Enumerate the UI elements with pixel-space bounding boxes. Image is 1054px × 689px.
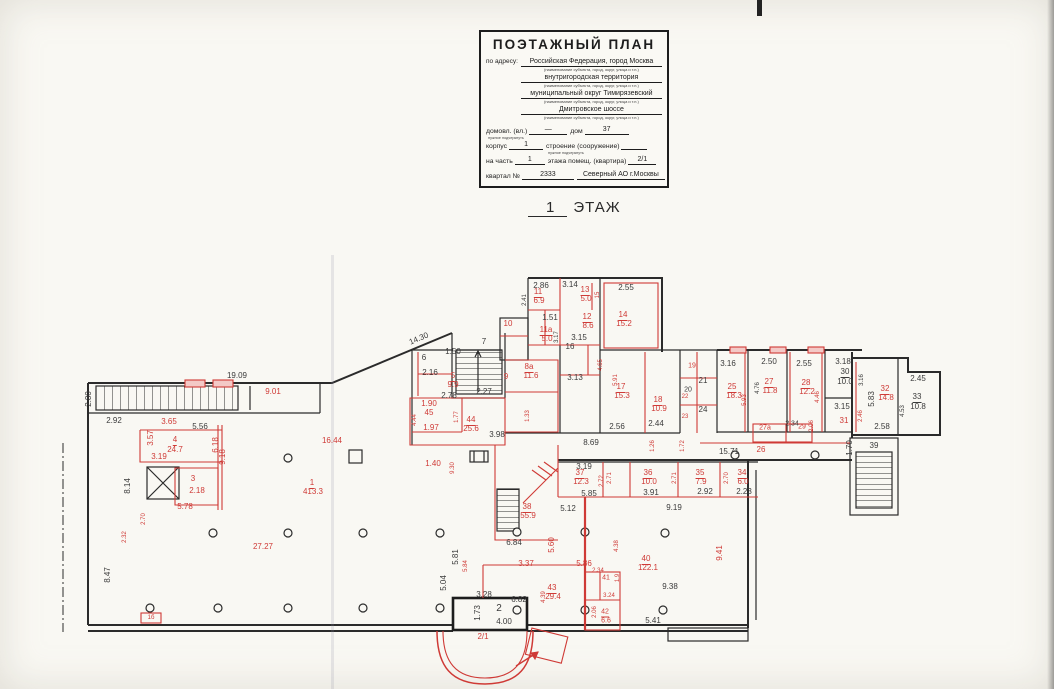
dimension-label: 2.58 [874, 423, 890, 431]
dimension-label: 3.98 [489, 431, 505, 439]
dimension-label: 413.3 [303, 488, 323, 496]
dimension-label: 5.81 [452, 549, 460, 565]
dimension-label: 1.26 [650, 440, 656, 452]
dimension-label: 2.56 [609, 423, 625, 431]
dimension-label: 1.72 [680, 440, 686, 452]
dimension-label: 3.17 [554, 331, 560, 343]
dimension-label: 45 [425, 409, 434, 417]
dimension-label: 2.27 [476, 388, 492, 396]
dimension-label: 27.27 [253, 543, 273, 551]
dimension-label: 15.2 [616, 320, 632, 328]
dimension-label: 4.39 [541, 591, 547, 603]
dimension-label: 41 [602, 575, 610, 582]
dimension-label: 9.38 [662, 583, 678, 591]
dimension-label: 4.44 [412, 414, 418, 426]
dimension-label: 2.06 [809, 420, 815, 432]
dimension-label: 6.6 [601, 618, 611, 625]
dimension-label: 2.92 [106, 417, 122, 425]
dimension-label: 2.34 [592, 568, 604, 574]
dimension-label: 25.6 [463, 425, 479, 433]
scanned-floor-plan-page: ПОЭТАЖНЫЙ ПЛАН по адресу: Российская Фед… [0, 0, 1054, 689]
dimension-label: 9.9 [447, 381, 458, 389]
dimension-label: 24 [699, 406, 708, 414]
dimension-label: 11.8 [763, 387, 778, 395]
dimension-label: 2.80 [85, 391, 93, 407]
dimension-label: 2.71 [672, 472, 678, 484]
dimension-label: 3.15 [571, 334, 587, 342]
dimension-label: 24.7 [167, 446, 183, 454]
dimension-label: 5.12 [560, 505, 576, 513]
dimension-label: 1.97 [423, 424, 439, 432]
dimension-label: 5.83 [868, 391, 876, 407]
dimension-label: 6 [422, 354, 426, 362]
dimension-label: 2/1 [477, 633, 488, 641]
dimension-label: 22 [682, 394, 689, 400]
dimension-label: 15.3 [614, 392, 630, 400]
dimension-label: 2.70 [141, 513, 147, 525]
dimension-label: 5.93 [742, 394, 748, 406]
dimension-label: 39 [870, 442, 879, 450]
dimension-label: 6.84 [506, 539, 522, 547]
dimension-label: 2.78 [441, 392, 457, 400]
dimension-label: 15.71 [719, 448, 739, 456]
dimension-label: 3.91 [643, 489, 659, 497]
dimension-label: 3.16 [720, 360, 736, 368]
dimension-label: 3.37 [518, 560, 534, 568]
dimension-label: 12.3 [573, 478, 589, 486]
dimension-label: 10.0 [837, 378, 853, 386]
dimension-label: 9.01 [265, 388, 281, 396]
dimension-label: 5.41 [645, 617, 661, 625]
dimension-label: 2.16 [422, 369, 438, 377]
dimension-label: 8.69 [583, 439, 599, 447]
dimension-label: 18.3 [726, 392, 742, 400]
dimension-label: 29.4 [545, 593, 561, 601]
dimension-label: 26 [757, 446, 766, 454]
dimension-label: 2.50 [761, 358, 777, 366]
dimension-label: 3.13 [567, 374, 583, 382]
dimension-label: 31 [840, 417, 849, 425]
dimension-label: 6.9 [533, 297, 544, 305]
dimension-label: 2.46 [858, 410, 864, 422]
dimension-label: 3.65 [161, 418, 177, 426]
dimension-label: 3.15 [834, 403, 850, 411]
dimension-label: 1.9 [615, 574, 621, 582]
dimension-label: 29 [798, 424, 806, 431]
dimension-label: 1.51 [542, 314, 558, 322]
dimension-label: 16 [566, 343, 575, 351]
dimension-label: 5.04 [440, 575, 448, 591]
dimension-label: 1б [148, 615, 155, 621]
dimension-label: 19 [688, 363, 696, 370]
dimension-label: 9.18 [219, 449, 227, 465]
dimension-label: 2.41 [522, 294, 528, 306]
dimension-label: 2.45 [910, 375, 926, 383]
dimension-label: 1.50 [445, 348, 461, 356]
dimension-label: 122.1 [638, 564, 658, 572]
dimension-label: 3.24 [603, 593, 615, 599]
dimension-label: 2.34 [785, 421, 799, 428]
dimension-label: 2.18 [189, 487, 205, 495]
dimension-label: 2.71 [607, 472, 613, 484]
plan-labels-layer: 19.099.012.802.923.655.563.57424.73.196.… [0, 0, 1054, 689]
dimension-label: 5.60 [548, 537, 556, 553]
dimension-label: 3.19 [151, 453, 167, 461]
dimension-label: 8.47 [104, 567, 112, 583]
dimension-label: 9.30 [450, 462, 456, 474]
dimension-label: 2.72 [599, 475, 605, 487]
dimension-label: 5.86 [576, 560, 592, 568]
dimension-label: 5.85 [581, 490, 597, 498]
dimension-label: 7.9 [695, 478, 706, 486]
dimension-label: 5.0 [541, 335, 552, 343]
dimension-label: 14.8 [878, 394, 894, 402]
dimension-label: 1.77 [454, 411, 460, 423]
dimension-label: 7 [482, 338, 486, 346]
dimension-label: 3.16 [859, 374, 865, 386]
dimension-label: 4.76 [755, 382, 761, 394]
dimension-label: 5.0 [580, 295, 591, 303]
dimension-label: 6.0 [737, 478, 748, 486]
dimension-label: 9 [504, 373, 508, 381]
dimension-label: 2.44 [648, 420, 664, 428]
dimension-label: 55.9 [520, 512, 536, 520]
dimension-label: 11.6 [524, 372, 539, 380]
dimension-label: 10 [504, 320, 513, 328]
dimension-label: 14.30 [408, 331, 430, 346]
dimension-label: 3.28 [476, 591, 492, 599]
dimension-label: 1.33 [525, 410, 531, 422]
dimension-label: 1.90 [421, 400, 437, 408]
dimension-label: 10.9 [651, 405, 667, 413]
dimension-label: 3.18 [835, 358, 851, 366]
dimension-label: 16.44 [322, 437, 342, 445]
dimension-label: 2.06 [592, 606, 598, 618]
dimension-label: 6.82 [511, 596, 527, 604]
dimension-label: 4.00 [496, 618, 512, 626]
dimension-label: 10.0 [641, 478, 657, 486]
dimension-label: 2.23 [736, 488, 752, 496]
dimension-label: 4.38 [614, 540, 620, 552]
dimension-label: 5.56 [192, 423, 208, 431]
dimension-label: 5.84 [463, 560, 469, 572]
dimension-label: 1.40 [425, 460, 441, 468]
dimension-label: 21 [699, 377, 708, 385]
dimension-label: 2.32 [122, 531, 128, 543]
dimension-label: 15 [595, 292, 601, 299]
dimension-label: 20 [684, 387, 692, 394]
dimension-label: 3 [191, 475, 195, 483]
dimension-label: 23 [682, 414, 689, 420]
dimension-label: 4.46 [815, 391, 821, 403]
dimension-label: 4.65 [598, 359, 604, 371]
room-number-label: 42 [601, 609, 609, 618]
dimension-label: 5.78 [177, 503, 193, 511]
dimension-label: 10.8 [910, 403, 926, 411]
dimension-label: 27а [759, 425, 771, 432]
dimension-label: 8.14 [124, 478, 132, 494]
dimension-label: 2.92 [697, 488, 713, 496]
dimension-label: 9.19 [666, 504, 682, 512]
dimension-label: 12.2 [799, 388, 815, 396]
dimension-label: 3.14 [562, 281, 578, 289]
dimension-label: 8.6 [582, 322, 593, 330]
dimension-label: 2.55 [796, 360, 812, 368]
dimension-label: 4.53 [900, 405, 906, 417]
dimension-label: 19.09 [227, 372, 247, 380]
dimension-label: 2.55 [618, 284, 634, 292]
dimension-label: 2.70 [724, 472, 730, 484]
dimension-label: 1.70 [846, 440, 854, 456]
dimension-label: 1.73 [474, 605, 482, 621]
dimension-label: 9.41 [716, 545, 724, 561]
dimension-label: 2 [496, 604, 502, 614]
dimension-label: 3.57 [147, 430, 155, 446]
